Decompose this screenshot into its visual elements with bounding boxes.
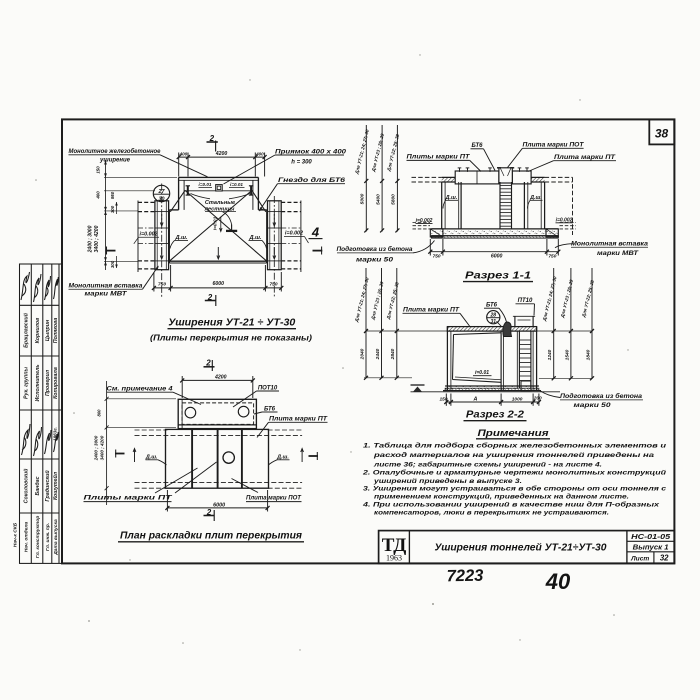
- svg-text:ПОТ10: ПОТ10: [258, 385, 278, 391]
- svg-text:(Плиты перекрытия не показа: (Плиты перекрытия не показаны): [150, 334, 312, 343]
- svg-text:Гнездо для БТ6: Гнездо для БТ6: [278, 178, 346, 184]
- svg-text:32: 32: [660, 554, 669, 563]
- svg-text:Разрез 2-2: Разрез 2-2: [466, 409, 525, 420]
- svg-text:Цыприн: Цыприн: [45, 319, 51, 341]
- svg-text:Корнилов: Корнилов: [35, 317, 41, 343]
- svg-text:БТ6: БТ6: [264, 406, 276, 412]
- svg-text:4: 4: [311, 225, 320, 240]
- svg-text:Бандас: Бандас: [35, 476, 41, 495]
- svg-text:Гл. конструктор: Гл. конструктор: [35, 516, 41, 558]
- svg-text:Плиты марки ПТ: Плиты марки ПТ: [84, 496, 174, 502]
- svg-text:А: А: [473, 396, 478, 402]
- svg-text:Монолитная вставка: Монолитная вставка: [69, 283, 144, 289]
- svg-text:38: 38: [655, 127, 669, 141]
- svg-text:400: 400: [179, 152, 188, 157]
- svg-text:28: 28: [490, 313, 497, 319]
- svg-text:h = 300: h = 300: [291, 160, 312, 166]
- svg-text:Исполнитель: Исполнитель: [35, 364, 41, 401]
- svg-text:2: 2: [207, 293, 213, 302]
- svg-text:Нач-к СКБ: Нач-к СКБ: [13, 522, 19, 547]
- svg-text:БТ6: БТ6: [486, 303, 498, 309]
- svg-text:300: 300: [110, 205, 115, 213]
- svg-text:i=0.01: i=0.01: [230, 182, 243, 187]
- svg-text:марки МВТ: марки МВТ: [597, 251, 640, 257]
- svg-text:2840: 2840: [390, 348, 396, 360]
- svg-text:Копировала: Копировала: [53, 367, 59, 399]
- svg-text:200: 200: [533, 396, 542, 402]
- svg-text:Нач. отдела: Нач. отдела: [24, 521, 30, 552]
- svg-text:950: 950: [110, 191, 115, 199]
- svg-text:150: 150: [96, 166, 101, 174]
- svg-text:компенсаторов, люки в перек: компенсаторов, люки в перекрытиях не уст…: [374, 510, 609, 517]
- svg-text:2400 ; 3000: 2400 ; 3000: [93, 435, 98, 461]
- svg-text:2: 2: [205, 359, 211, 368]
- svg-text:5000: 5000: [360, 193, 366, 204]
- svg-text:Разрез 1-1: Разрез 1-1: [465, 270, 531, 281]
- svg-text:уширений приведены в выпуск: уширений приведены в выпуске 3.: [373, 477, 522, 485]
- svg-text:2040: 2040: [359, 348, 365, 360]
- svg-text:ПТ10: ПТ10: [518, 298, 533, 304]
- svg-text:1840: 1840: [585, 349, 591, 360]
- svg-text:Подготовка из бетона: Подготовка из бетона: [337, 246, 414, 253]
- svg-text:Плита марки ПОТ: Плита марки ПОТ: [246, 496, 302, 502]
- svg-text:Дата выпуска: Дата выпуска: [53, 519, 59, 556]
- svg-text:30: 30: [159, 196, 165, 202]
- svg-text:5400: 5400: [375, 194, 381, 205]
- svg-text:Плиты марки ПТ: Плиты марки ПТ: [407, 155, 472, 161]
- svg-text:Проверил: Проверил: [45, 369, 51, 396]
- svg-text:Стальные: Стальные: [205, 200, 235, 206]
- svg-text:300: 300: [110, 260, 115, 268]
- svg-text:2: 2: [209, 134, 215, 143]
- svg-text:Соколовский: Соколовский: [23, 468, 30, 503]
- svg-text:3. Уширения могут устраивать: 3. Уширения могут устраиваться в обе сто…: [363, 485, 666, 493]
- svg-text:БТ6: БТ6: [471, 143, 483, 149]
- svg-text:Гл. инж. пр.: Гл. инж. пр.: [45, 523, 51, 551]
- svg-text:2: 2: [206, 508, 212, 517]
- svg-text:i=0.002: i=0.002: [140, 231, 158, 237]
- svg-text:Подготовка из бетона: Подготовка из бетона: [560, 393, 643, 400]
- svg-text:См. примечание 4: См. примечание 4: [107, 386, 174, 392]
- svg-text:2. Опалубочные и арматурные: 2. Опалубочные и арматурные чертежи моно…: [362, 468, 666, 476]
- svg-text:750: 750: [433, 254, 441, 260]
- svg-text:6000: 6000: [213, 503, 225, 509]
- svg-text:Кошутейл: Кошутейл: [52, 471, 59, 500]
- svg-text:5800: 5800: [391, 194, 397, 205]
- svg-text:Лист: Лист: [630, 555, 649, 562]
- svg-text:3400 ; 4200: 3400 ; 4200: [94, 225, 100, 252]
- svg-text:6000: 6000: [491, 253, 503, 259]
- svg-text:400: 400: [255, 152, 264, 157]
- svg-text:27: 27: [158, 189, 166, 195]
- svg-text:применением конструкций, при: применением конструкций, приведенных на …: [374, 493, 629, 501]
- svg-text:Уширения УТ-21 ÷ УТ-30: Уширения УТ-21 ÷ УТ-30: [168, 318, 296, 329]
- svg-text:Плита марки ПТ: Плита марки ПТ: [269, 416, 329, 422]
- svg-text:Рук. группы: Рук. группы: [24, 367, 30, 399]
- svg-text:листе 36; габаритные схемы: листе 36; габаритные схемы уширений - на…: [373, 460, 602, 468]
- svg-text:Плита марки ПОТ: Плита марки ПОТ: [523, 142, 585, 148]
- svg-text:1540: 1540: [564, 349, 570, 360]
- svg-text:Монолитная вставка: Монолитная вставка: [571, 241, 649, 247]
- svg-text:1963: 1963: [386, 554, 402, 563]
- svg-text:Градинский: Градинский: [44, 470, 51, 502]
- svg-text:4200: 4200: [215, 151, 228, 157]
- svg-text:Монолитное железобетонное: Монолитное железобетонное: [69, 148, 162, 155]
- svg-text:750: 750: [548, 254, 556, 260]
- svg-text:i=0.002: i=0.002: [285, 231, 303, 237]
- svg-text:Уширения тоннелей УТ-21÷УТ-3: Уширения тоннелей УТ-21÷УТ-30: [435, 543, 607, 554]
- svg-text:750: 750: [269, 282, 277, 288]
- svg-text:марки МВТ: марки МВТ: [85, 292, 129, 298]
- svg-text:40: 40: [545, 569, 571, 594]
- svg-text:6000: 6000: [213, 281, 225, 287]
- svg-text:марки 50: марки 50: [356, 258, 394, 264]
- svg-text:750: 750: [158, 282, 166, 288]
- svg-text:i=0.01: i=0.01: [199, 182, 212, 187]
- svg-text:Плита марки ПТ: Плита марки ПТ: [554, 155, 617, 161]
- svg-text:1. Таблица для подбора сбор: 1. Таблица для подбора сборных железобет…: [363, 441, 666, 449]
- svg-text:марки 50: марки 50: [574, 403, 612, 409]
- svg-text:Брацлавский: Брацлавский: [23, 312, 30, 348]
- svg-text:4200: 4200: [214, 374, 227, 380]
- svg-text:2400 ; 3000: 2400 ; 3000: [88, 225, 94, 253]
- svg-text:уширение: уширение: [99, 158, 131, 164]
- svg-text:4. При использовании уширени: 4. При использовании уширений в качестве…: [362, 501, 660, 509]
- svg-text:Приямок 400 х 400: Приямок 400 х 400: [275, 149, 347, 155]
- svg-text:2440: 2440: [375, 348, 381, 360]
- svg-text:150: 150: [439, 396, 447, 402]
- svg-text:Плита марки ПТ: Плита марки ПТ: [403, 307, 460, 313]
- svg-text:Полякова: Полякова: [53, 318, 59, 344]
- svg-text:400: 400: [96, 191, 101, 200]
- svg-text:i=0.01: i=0.01: [213, 216, 219, 230]
- svg-text:1240: 1240: [547, 349, 553, 360]
- svg-text:3400 ; 4200: 3400 ; 4200: [99, 435, 104, 460]
- svg-text:НС-01-05: НС-01-05: [631, 532, 671, 541]
- svg-text:800: 800: [97, 409, 102, 417]
- svg-text:7223: 7223: [447, 567, 484, 586]
- svg-text:расход материалов на уширен: расход материалов на уширения тоннелей п…: [373, 451, 655, 459]
- svg-text:Выпуск 1: Выпуск 1: [633, 543, 669, 552]
- svg-text:План раскладки плит перекры: План раскладки плит перекрытия: [120, 530, 302, 541]
- svg-text:31: 31: [491, 319, 497, 325]
- svg-text:1000: 1000: [512, 396, 523, 402]
- svg-text:Примечания: Примечания: [478, 428, 550, 438]
